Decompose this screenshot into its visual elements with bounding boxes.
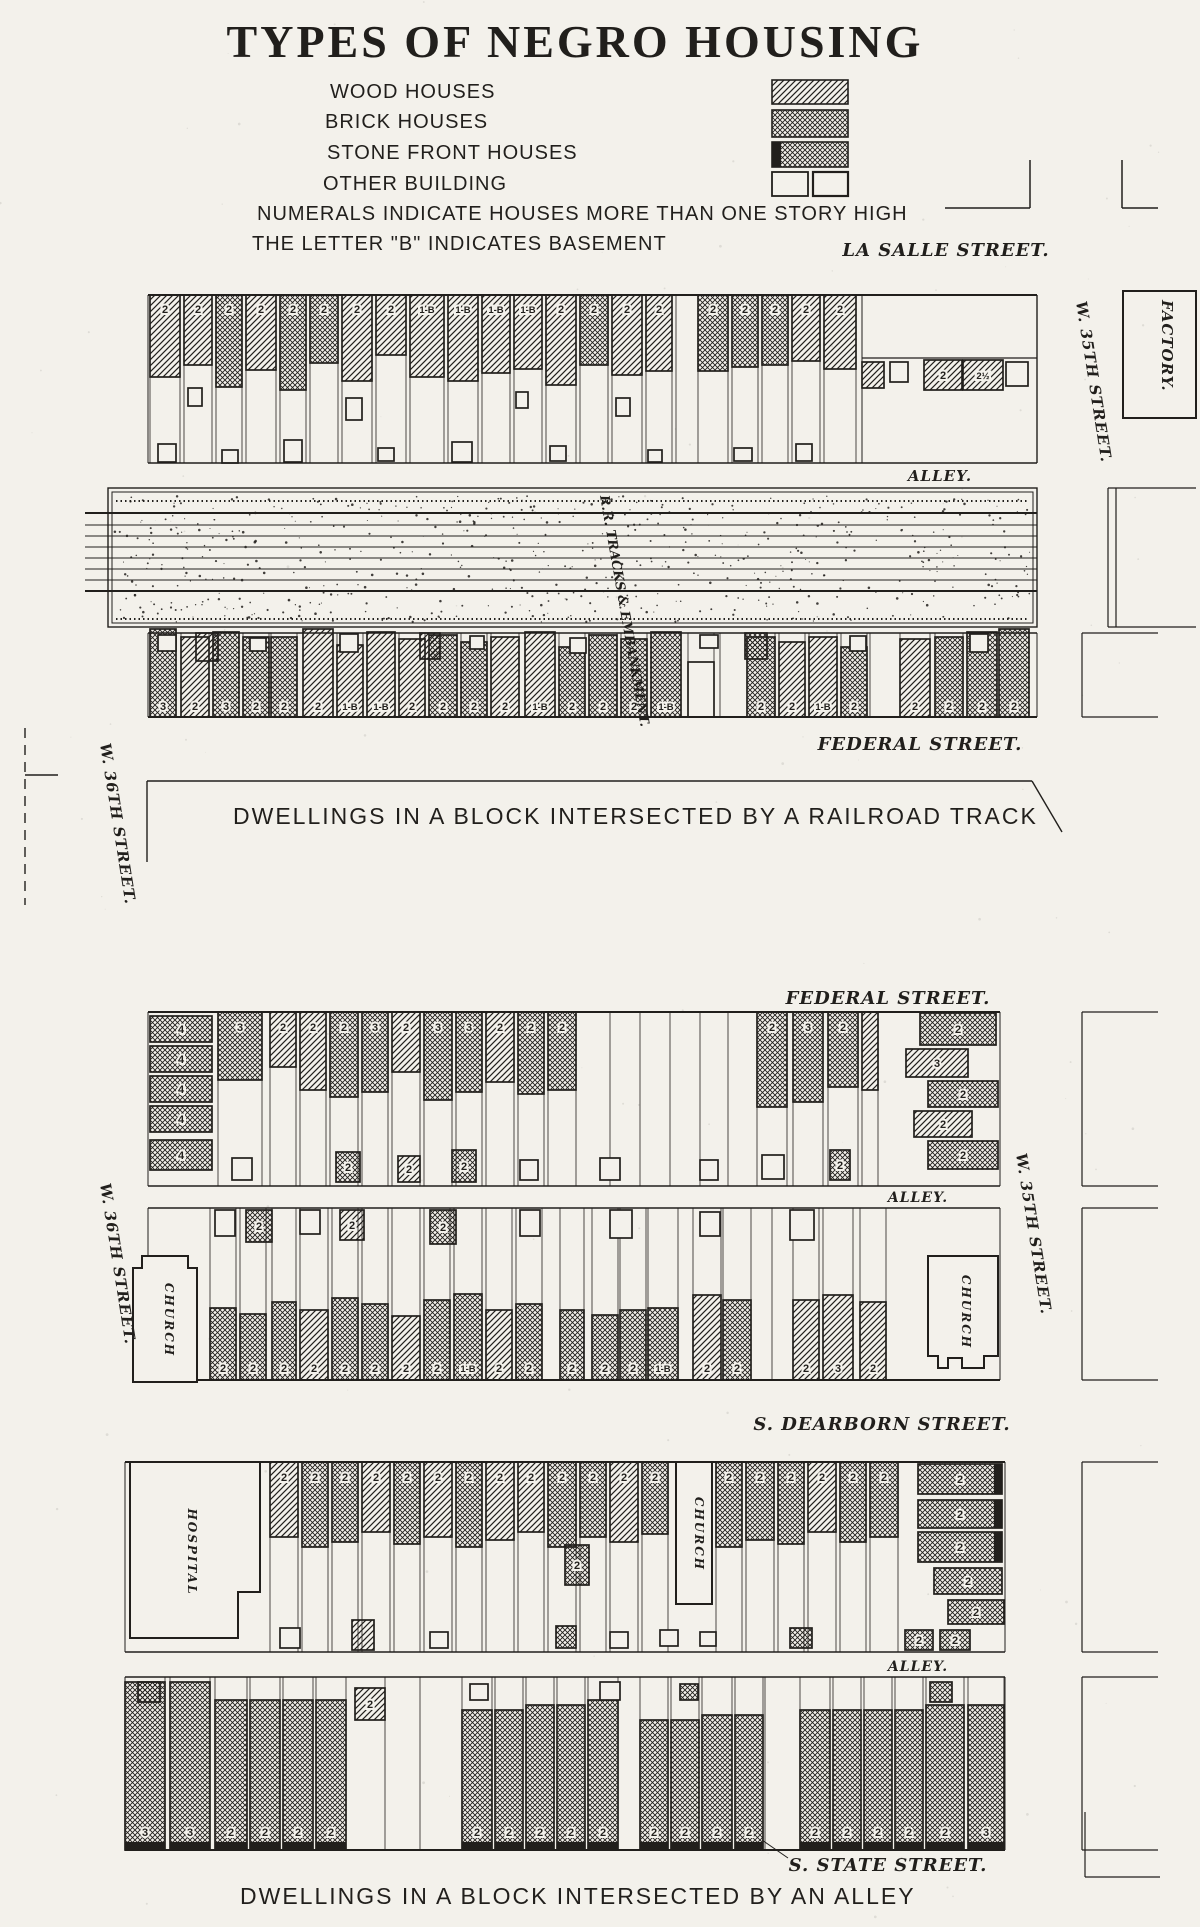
embankment-stipple [334, 549, 335, 550]
paper-speckle [1119, 662, 1120, 663]
embankment-stipple [161, 608, 163, 610]
embankment-stipple [173, 505, 175, 507]
embankment-stipple [224, 615, 225, 616]
embankment-stipple [127, 575, 129, 577]
stone-front-band [926, 1842, 964, 1850]
paper-speckle [802, 736, 803, 737]
paper-speckle [146, 1903, 148, 1905]
embankment-stipple [901, 506, 903, 508]
embankment-stipple [543, 614, 545, 616]
embankment-stipple [892, 615, 894, 617]
house-storey-numeral: 2 [870, 1363, 876, 1375]
embankment-stipple [694, 554, 697, 557]
embankment-stipple [933, 531, 935, 533]
embankment-stipple [922, 561, 924, 563]
house-storey-numeral: 2 [621, 1472, 627, 1484]
embankment-stipple [184, 518, 185, 519]
embankment-stipple [693, 572, 695, 574]
house-storey-numeral: 2 [704, 1363, 710, 1375]
paper-speckle [1091, 624, 1093, 626]
embankment-stipple [248, 616, 251, 619]
house-storey-numeral: 2 [256, 1221, 262, 1233]
house-storey-numeral: 2 [940, 1119, 946, 1131]
house-storey-numeral: 3 [372, 1022, 378, 1034]
embankment-stipple [760, 582, 762, 584]
embankment-stipple [434, 526, 436, 528]
paper-speckle [664, 287, 666, 289]
paper-speckle [1014, 29, 1015, 30]
embankment-stipple [431, 612, 433, 614]
embankment-stipple [192, 616, 193, 617]
paper-speckle [364, 734, 367, 737]
house-storey-numeral: 2 [591, 304, 597, 316]
embankment-stipple [657, 593, 658, 594]
embankment-stipple [682, 549, 684, 551]
embankment-stipple [521, 509, 523, 511]
legend-swatch-stone-front-band [772, 142, 781, 167]
paper-speckle [842, 1142, 843, 1143]
embankment-stipple [622, 495, 624, 497]
embankment-stipple [922, 566, 923, 567]
embankment-stipple [819, 507, 821, 509]
house-footprint [700, 1212, 720, 1236]
paper-speckle [380, 416, 381, 417]
embankment-stipple [183, 567, 185, 569]
paper-speckle [1140, 1445, 1141, 1446]
embankment-stipple [273, 506, 274, 507]
embankment-stipple [186, 606, 188, 608]
embankment-stipple [147, 562, 149, 564]
paper-speckle [874, 1916, 877, 1919]
embankment-stipple [715, 555, 716, 556]
embankment-stipple [839, 587, 841, 589]
house-storey-numeral: 2 [341, 1022, 347, 1034]
embankment-stipple [680, 600, 682, 602]
embankment-stipple [202, 556, 203, 557]
embankment-stipple [769, 581, 770, 582]
embankment-stipple [594, 565, 597, 568]
house-storey-numeral: 2 [940, 370, 946, 382]
embankment-stipple [674, 621, 676, 623]
embankment-stipple [572, 516, 573, 517]
house-storey-numeral: 1-B [815, 702, 830, 713]
embankment-stipple [255, 560, 258, 563]
house-footprint [790, 1210, 814, 1240]
embankment-stipple [318, 544, 320, 546]
embankment-stipple [754, 573, 755, 574]
embankment-stipple [607, 596, 609, 598]
house-storey-numeral: 2 [746, 1827, 752, 1839]
embankment-stipple [157, 613, 159, 615]
house-storey-numeral: 2 [342, 1363, 348, 1375]
paper-speckle [782, 567, 784, 569]
embankment-stipple [320, 504, 321, 505]
house-footprint [745, 633, 767, 659]
legend-swatch-wood-icon [772, 80, 848, 104]
house-footprint [284, 440, 302, 462]
embankment-stipple [684, 528, 687, 531]
paper-speckle [1040, 1590, 1041, 1591]
embankment-stipple [415, 514, 417, 516]
paper-speckle [568, 1389, 570, 1391]
paper-speckle [105, 909, 106, 910]
embankment-stipple [945, 500, 947, 502]
house-storey-numeral: 2 [440, 701, 446, 713]
alley-label-fig3: ALLEY. [886, 1659, 948, 1675]
paper-speckle [781, 762, 784, 765]
stone-front-band [895, 1842, 923, 1850]
paper-speckle [1150, 145, 1152, 147]
embankment-stipple [503, 516, 505, 518]
paper-speckle [479, 370, 481, 372]
embankment-stipple [539, 571, 540, 572]
embankment-stipple [332, 620, 334, 622]
embankment-stipple [247, 564, 249, 566]
house-storey-numeral: 2 [250, 1363, 256, 1375]
embankment-stipple [639, 564, 641, 566]
house-storey-numeral: 2 [851, 701, 857, 713]
embankment-stipple [439, 600, 442, 603]
embankment-stipple [791, 561, 793, 563]
embankment-stipple [281, 508, 282, 509]
paper-speckle [644, 495, 646, 497]
embankment-stipple [488, 605, 489, 606]
embankment-stipple [950, 544, 952, 546]
house-storey-numeral: 2 [404, 1472, 410, 1484]
paper-speckle [224, 629, 226, 631]
embankment-stipple [469, 514, 472, 517]
embankment-stipple [568, 616, 570, 618]
embankment-stipple [558, 521, 560, 523]
embankment-stipple [397, 607, 398, 608]
embankment-stipple [530, 506, 532, 508]
house-storey-numeral: 2 [946, 701, 952, 713]
embankment-stipple [232, 530, 234, 532]
house-storey-numeral: 2 [600, 1827, 606, 1839]
embankment-stipple [485, 508, 487, 510]
street-label-dearborn: S. DEARBORN STREET. [753, 1414, 1010, 1435]
stone-front-band [968, 1842, 1004, 1850]
house-storey-numeral: 1-B [532, 702, 547, 713]
embankment-stipple [325, 561, 326, 562]
paper-speckle [81, 818, 83, 820]
stone-front-band [170, 1842, 210, 1850]
embankment-stipple [1007, 617, 1009, 619]
embankment-stipple [565, 598, 566, 599]
embankment-stipple [223, 577, 225, 579]
embankment-stipple [665, 561, 667, 563]
embankment-stipple [902, 592, 903, 593]
house-storey-numeral: 1-B [520, 305, 535, 316]
legend-swatch-other2-icon [813, 172, 848, 196]
embankment-stipple [424, 619, 426, 621]
house-storey-numeral: 2 [434, 1363, 440, 1375]
factory-label: FACTORY. [1158, 299, 1176, 392]
embankment-stipple [650, 540, 652, 542]
paper-speckle [155, 520, 156, 521]
house-storey-numeral: 2 [312, 1472, 318, 1484]
embankment-stipple [202, 601, 204, 603]
embankment-stipple [497, 498, 499, 500]
embankment-stipple [456, 521, 457, 522]
house-storey-numeral: 1-B [658, 702, 673, 713]
embankment-stipple [592, 548, 593, 549]
paper-speckle [922, 218, 924, 220]
paper-speckle [40, 370, 42, 372]
paper-speckle [567, 455, 569, 457]
embankment-stipple [731, 505, 733, 507]
embankment-stipple [793, 586, 795, 588]
embankment-stipple [412, 621, 414, 623]
embankment-stipple [508, 502, 510, 504]
embankment-stipple [836, 596, 838, 598]
house-storey-numeral: 2 [803, 1363, 809, 1375]
legend-swatches [772, 80, 848, 196]
embankment-stipple [197, 523, 199, 525]
embankment-stipple [653, 612, 654, 613]
house-storey-numeral: 2 [474, 1827, 480, 1839]
embankment-stipple [415, 583, 418, 586]
house-footprint [158, 635, 176, 651]
embankment-stipple [299, 605, 301, 607]
house-storey-numeral: 3 [805, 1022, 811, 1034]
house-footprint [452, 442, 472, 462]
house-storey-numeral: 1-B [488, 305, 503, 316]
embankment-stipple [333, 525, 335, 527]
embankment-stipple [656, 605, 658, 607]
house-storey-numeral: 2 [840, 1022, 846, 1034]
embankment-stipple [500, 498, 502, 500]
paper-speckle [449, 1796, 450, 1797]
legend-swatch-other-icon [772, 172, 808, 196]
paper-speckle [1070, 1061, 1072, 1063]
embankment-stipple [766, 606, 767, 607]
embankment-stipple [720, 556, 721, 557]
embankment-stipple [909, 555, 911, 557]
paper-speckle [667, 1439, 669, 1441]
embankment-stipple [629, 509, 630, 510]
embankment-stipple [177, 585, 179, 587]
house-footprint [1006, 362, 1028, 386]
embankment-stipple [263, 572, 266, 575]
house-footprint [352, 1620, 374, 1650]
embankment-stipple [526, 495, 528, 497]
house-storey-numeral: 2 [559, 1022, 565, 1034]
embankment-stipple [662, 504, 664, 506]
embankment-stipple [516, 497, 518, 499]
embankment-stipple [131, 580, 133, 582]
paper-speckle [1065, 1601, 1068, 1604]
embankment-stipple [634, 584, 636, 586]
paper-speckle [935, 289, 937, 291]
embankment-stipple [896, 597, 899, 600]
legend-swatch-brick-icon [772, 110, 848, 137]
house-storey-numeral: 2 [220, 1363, 226, 1375]
house-storey-numeral: 2 [388, 304, 394, 316]
house-storey-numeral: 2 [714, 1827, 720, 1839]
embankment-stipple [406, 574, 408, 576]
embankment-stipple [457, 496, 458, 497]
embankment-stipple [233, 577, 235, 579]
embankment-stipple [796, 601, 799, 604]
embankment-stipple [850, 619, 851, 620]
embankment-stipple [379, 501, 381, 503]
embankment-stipple [573, 592, 575, 594]
embankment-stipple [285, 541, 288, 544]
stone-front-band [283, 1842, 313, 1850]
house-footprint [648, 450, 662, 462]
embankment-stipple [973, 605, 975, 607]
house-storey-numeral: 2 [471, 701, 477, 713]
embankment-stipple [600, 559, 601, 560]
embankment-stipple [518, 542, 520, 544]
embankment-stipple [585, 621, 587, 623]
embankment-stipple [440, 611, 442, 613]
embankment-stipple [548, 565, 549, 566]
embankment-stipple [1029, 552, 1030, 553]
embankment-stipple [1020, 555, 1022, 557]
embankment-stipple [451, 501, 453, 503]
embankment-stipple [767, 538, 769, 540]
embankment-stipple [420, 507, 422, 509]
paper-speckle [533, 1238, 535, 1240]
embankment-stipple [295, 521, 296, 522]
paper-speckle [1075, 1623, 1077, 1625]
embankment-stipple [710, 608, 712, 610]
embankment-stipple [790, 551, 791, 552]
house-storey-numeral: 2 [742, 304, 748, 316]
house-storey-numeral: 1-B [342, 702, 357, 713]
house-storey-numeral: 1-B [655, 1364, 670, 1375]
paper-speckle [1056, 917, 1057, 918]
embankment-stipple [336, 584, 338, 586]
house-storey-numeral: 2 [837, 1160, 843, 1172]
embankment-stipple [742, 599, 743, 600]
house-storey-numeral: 3 [223, 701, 229, 713]
house-footprint [556, 1626, 576, 1648]
embankment-stipple [1026, 509, 1028, 511]
paper-speckle [422, 1781, 425, 1784]
stone-front-band [215, 1842, 247, 1850]
embankment-stipple [533, 551, 534, 552]
embankment-stipple [366, 503, 367, 504]
embankment-stipple [442, 533, 443, 534]
paper-speckle [205, 752, 206, 753]
stone-front-band [526, 1842, 554, 1850]
embankment-stipple [823, 574, 825, 576]
paper-speckle [952, 1896, 954, 1898]
embankment-stipple [505, 560, 507, 562]
house-footprint [700, 1632, 716, 1646]
embankment-stipple [850, 531, 852, 533]
embankment-stipple [543, 551, 544, 552]
embankment-stipple [926, 604, 929, 607]
embankment-stipple [249, 514, 251, 516]
embankment-stipple [282, 611, 284, 613]
embankment-stipple [529, 610, 530, 611]
paper-speckle [347, 1390, 348, 1391]
embankment-stipple [150, 527, 152, 529]
embankment-stipple [589, 602, 591, 604]
embankment-stipple [533, 505, 535, 507]
house-storey-numeral: 3 [187, 1827, 193, 1839]
house-storey-numeral: 2 [912, 701, 918, 713]
embankment-stipple [953, 565, 954, 566]
embankment-stipple [792, 618, 794, 620]
embankment-stipple [302, 620, 303, 621]
embankment-stipple [707, 514, 708, 515]
embankment-stipple [124, 573, 126, 575]
embankment-stipple [380, 503, 382, 505]
paper-speckle [1018, 57, 1019, 58]
embankment-stipple [545, 534, 547, 536]
embankment-stipple [732, 509, 733, 510]
house-storey-numeral: 1-B [419, 305, 434, 316]
embankment-stipple [135, 584, 137, 586]
house-storey-numeral: 2 [528, 1472, 534, 1484]
house-storey-numeral: 2 [574, 1560, 580, 1572]
embankment-stipple [984, 597, 986, 599]
embankment-stipple [521, 587, 523, 589]
house-footprint [600, 1158, 620, 1180]
house-storey-numeral: 2 [875, 1827, 881, 1839]
embankment-stipple [928, 559, 930, 561]
paper-speckle [1108, 932, 1110, 934]
embankment-stipple [634, 529, 636, 531]
house-footprint [610, 1632, 628, 1648]
house-storey-numeral: 2 [403, 1363, 409, 1375]
embankment-stipple [933, 595, 935, 597]
embankment-stipple [151, 601, 152, 602]
embankment-stipple [887, 516, 888, 517]
embankment-stipple [140, 522, 141, 523]
embankment-stipple [349, 558, 351, 560]
embankment-stipple [177, 533, 179, 535]
embankment-stipple [382, 620, 384, 622]
embankment-stipple [492, 588, 493, 589]
embankment-stipple [765, 572, 767, 574]
embankment-stipple [142, 499, 144, 501]
embankment-stipple [477, 516, 478, 517]
embankment-stipple [650, 500, 652, 502]
stone-front-band [864, 1842, 892, 1850]
embankment-stipple [988, 514, 990, 516]
embankment-stipple [592, 542, 594, 544]
embankment-stipple [181, 532, 182, 533]
house-storey-numeral: 2 [788, 1472, 794, 1484]
house-storey-numeral: 2 [734, 1363, 740, 1375]
embankment-stipple [380, 559, 382, 561]
embankment-stipple [364, 586, 367, 589]
embankment-stipple [190, 580, 191, 581]
house-footprint [660, 1630, 678, 1646]
house-storey-numeral: 2 [195, 304, 201, 316]
embankment-stipple [456, 616, 458, 618]
embankment-stipple [314, 612, 317, 615]
embankment-stipple [921, 560, 923, 562]
house-storey-numeral: 2 [569, 701, 575, 713]
embankment-stipple [349, 548, 351, 550]
embankment-stipple [330, 611, 332, 613]
embankment-stipple [782, 571, 783, 572]
embankment-stipple [412, 551, 413, 552]
paper-speckle [101, 896, 102, 897]
paper-speckle [884, 1080, 887, 1083]
embankment-stipple [225, 539, 227, 541]
embankment-stipple [746, 532, 747, 533]
embankment-stipple [548, 600, 550, 602]
embankment-stipple [330, 593, 332, 595]
